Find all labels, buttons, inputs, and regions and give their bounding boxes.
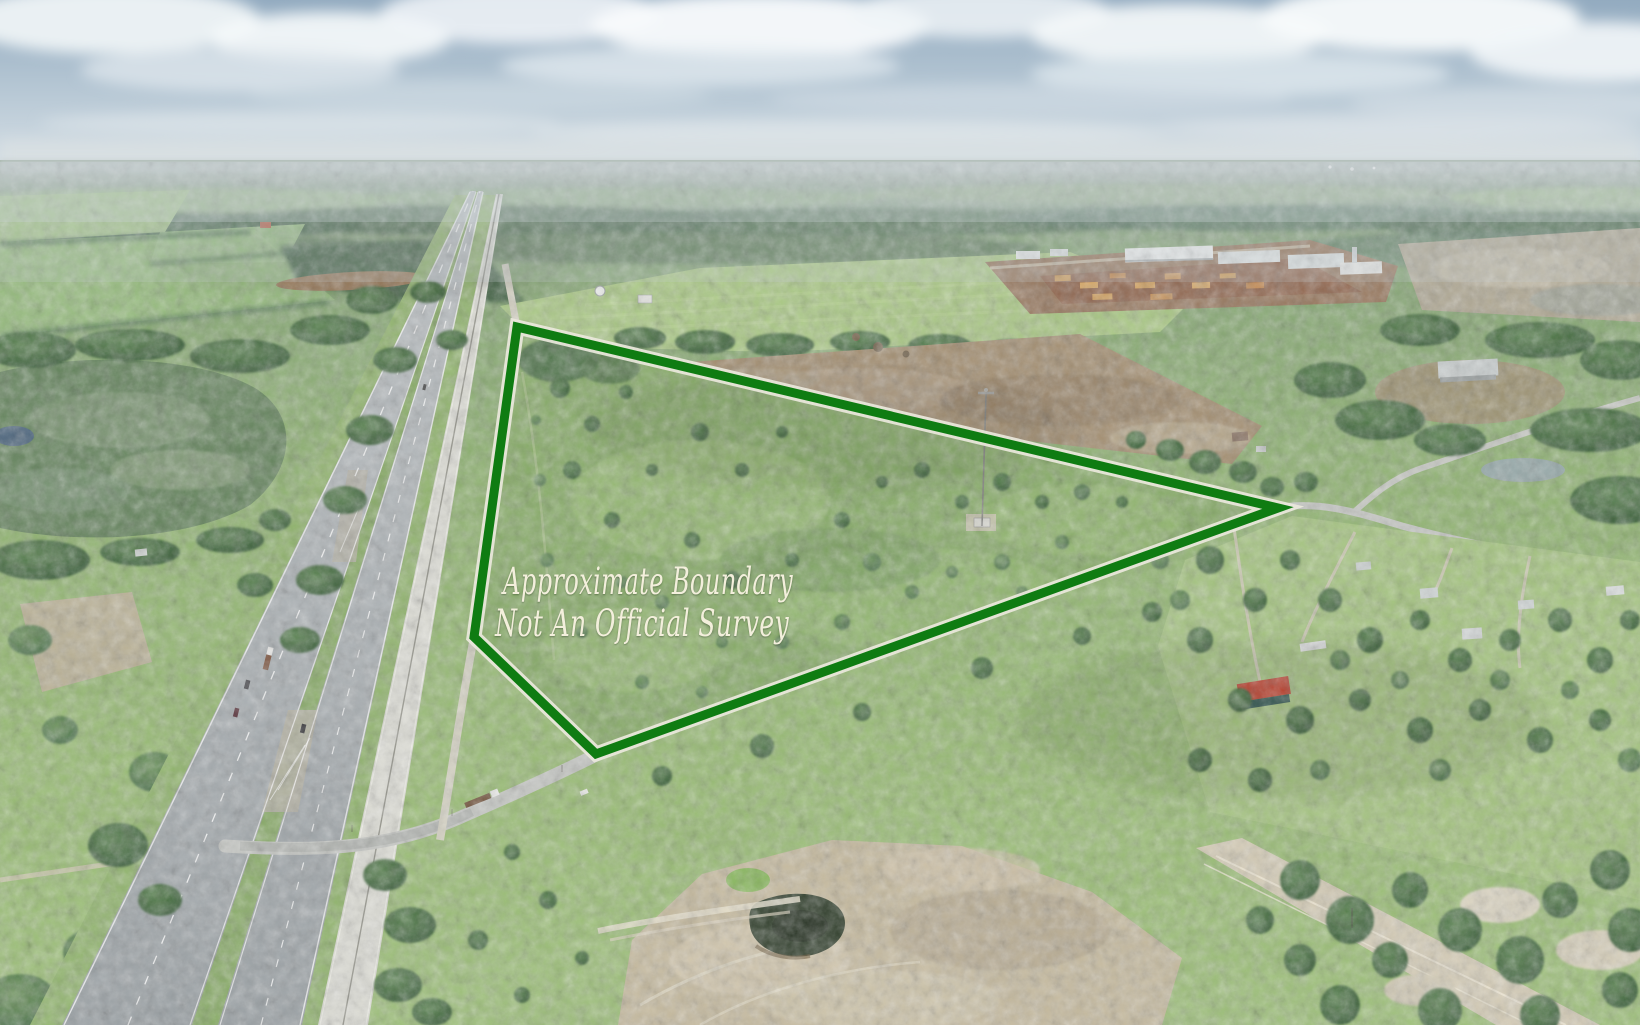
watermark-line-2: Not An Official Survey (494, 602, 789, 645)
watermark: Approximate Boundary Not An Official Sur… (494, 560, 793, 645)
watermark-line-1: Approximate Boundary (501, 560, 793, 603)
terrain-texture (0, 162, 1640, 1025)
aerial-photo-canvas: Approximate Boundary Not An Official Sur… (0, 0, 1640, 1025)
aerial-photo: Approximate Boundary Not An Official Sur… (0, 0, 1640, 1025)
